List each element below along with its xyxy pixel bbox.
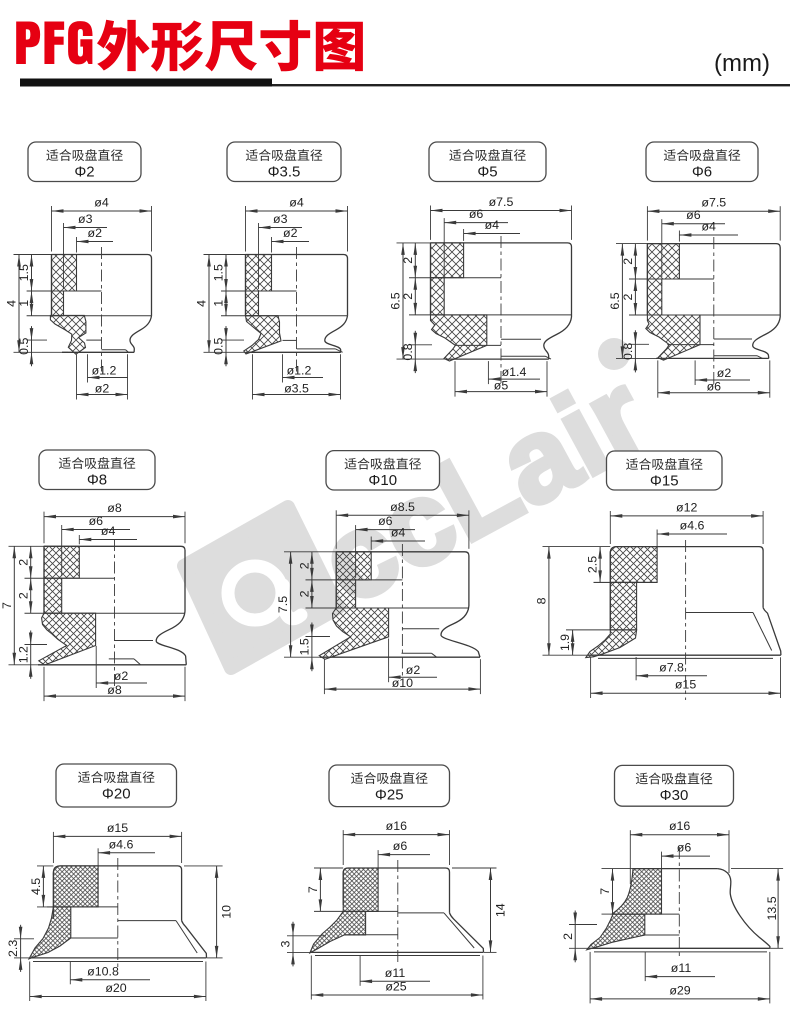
svg-text:ø25: ø25	[385, 980, 406, 994]
svg-text:ø29: ø29	[669, 983, 690, 997]
svg-text:2.5: 2.5	[586, 556, 600, 573]
svg-text:ø2: ø2	[406, 663, 421, 677]
svg-text:ø6: ø6	[677, 841, 692, 855]
svg-text:0.8: 0.8	[621, 343, 635, 360]
svg-text:ø16: ø16	[386, 819, 407, 833]
svg-text:Φ8: Φ8	[87, 472, 107, 489]
svg-text:1: 1	[17, 300, 31, 307]
svg-text:2: 2	[298, 562, 312, 569]
svg-text:ø4.6: ø4.6	[109, 837, 134, 851]
svg-text:ø1.4: ø1.4	[502, 365, 527, 379]
svg-text:ø2: ø2	[283, 226, 298, 240]
svg-text:Φ10: Φ10	[368, 472, 397, 489]
svg-text:0.8: 0.8	[401, 343, 415, 360]
svg-text:7: 7	[598, 888, 612, 895]
svg-text:0.5: 0.5	[212, 337, 226, 354]
svg-text:1.2: 1.2	[16, 646, 30, 663]
svg-text:ø3: ø3	[78, 212, 93, 226]
svg-text:7.5: 7.5	[276, 596, 290, 613]
svg-text:ø6: ø6	[686, 208, 701, 222]
svg-text:ø1.2: ø1.2	[92, 364, 117, 378]
svg-text:ø10: ø10	[392, 676, 413, 690]
svg-text:ø4: ø4	[485, 218, 500, 232]
svg-text:ø8: ø8	[107, 683, 122, 697]
svg-text:ø20: ø20	[105, 981, 126, 995]
svg-text:ø6: ø6	[469, 207, 484, 221]
svg-text:Φ25: Φ25	[375, 787, 404, 804]
svg-text:ø7.5: ø7.5	[489, 195, 514, 209]
svg-text:2: 2	[16, 559, 30, 566]
svg-text:ø4: ø4	[701, 220, 716, 234]
svg-text:ø1.2: ø1.2	[287, 364, 312, 378]
svg-text:ø4: ø4	[289, 196, 304, 210]
svg-text:ø2: ø2	[95, 382, 110, 396]
svg-text:ø5: ø5	[494, 379, 509, 393]
svg-text:1.5: 1.5	[212, 264, 226, 281]
svg-text:Φ30: Φ30	[660, 787, 689, 804]
svg-text:13.5: 13.5	[765, 896, 779, 920]
svg-text:ø15: ø15	[107, 821, 128, 835]
svg-text:ø2: ø2	[88, 226, 103, 240]
svg-text:ø8: ø8	[107, 501, 122, 515]
svg-text:3: 3	[279, 941, 293, 948]
svg-text:2: 2	[401, 257, 415, 264]
svg-text:1.5: 1.5	[17, 264, 31, 281]
svg-text:1.5: 1.5	[298, 638, 312, 655]
svg-text:ø11: ø11	[385, 966, 406, 980]
svg-text:Φ3.5: Φ3.5	[268, 164, 301, 181]
svg-text:4: 4	[195, 300, 209, 307]
svg-text:ø11: ø11	[671, 961, 692, 975]
svg-text:ø3.5: ø3.5	[284, 382, 309, 396]
svg-text:ø4: ø4	[101, 524, 116, 538]
svg-text:ø6: ø6	[393, 839, 408, 853]
svg-text:ø7.5: ø7.5	[701, 196, 726, 210]
svg-text:2: 2	[621, 258, 635, 265]
svg-text:8: 8	[535, 597, 549, 604]
svg-text:2.3: 2.3	[6, 940, 20, 957]
svg-text:7: 7	[306, 886, 320, 893]
svg-text:ø6: ø6	[707, 380, 722, 394]
svg-text:ø3: ø3	[273, 212, 288, 226]
svg-text:ø7.8: ø7.8	[659, 660, 684, 674]
svg-text:Φ5: Φ5	[477, 164, 497, 181]
svg-text:6.5: 6.5	[608, 292, 622, 309]
svg-text:ø2: ø2	[717, 366, 732, 380]
svg-text:2: 2	[561, 933, 575, 940]
svg-text:2: 2	[401, 293, 415, 300]
svg-text:ø4: ø4	[94, 196, 109, 210]
svg-text:Φ2: Φ2	[74, 164, 94, 181]
svg-text:0.5: 0.5	[17, 337, 31, 354]
svg-text:ø4: ø4	[391, 526, 406, 540]
svg-text:10: 10	[219, 905, 233, 919]
svg-text:ø16: ø16	[669, 819, 690, 833]
svg-text:14: 14	[493, 903, 507, 917]
svg-text:1.9: 1.9	[558, 634, 572, 651]
svg-text:ø12: ø12	[676, 500, 697, 514]
svg-text:ø2: ø2	[114, 669, 129, 683]
svg-text:ø4.6: ø4.6	[680, 519, 705, 533]
svg-text:Φ20: Φ20	[102, 786, 131, 803]
svg-text:2: 2	[621, 293, 635, 300]
svg-text:1: 1	[212, 300, 226, 307]
svg-text:Φ6: Φ6	[692, 164, 712, 181]
svg-text:ø8.5: ø8.5	[390, 500, 415, 514]
svg-text:2: 2	[298, 590, 312, 597]
svg-text:2: 2	[16, 592, 30, 599]
svg-text:4.5: 4.5	[29, 878, 43, 895]
svg-text:7: 7	[0, 602, 14, 609]
svg-text:ø15: ø15	[675, 678, 696, 692]
svg-text:Φ15: Φ15	[650, 473, 679, 490]
svg-text:(mm): (mm)	[714, 50, 770, 77]
svg-text:ø10.8: ø10.8	[87, 964, 119, 978]
